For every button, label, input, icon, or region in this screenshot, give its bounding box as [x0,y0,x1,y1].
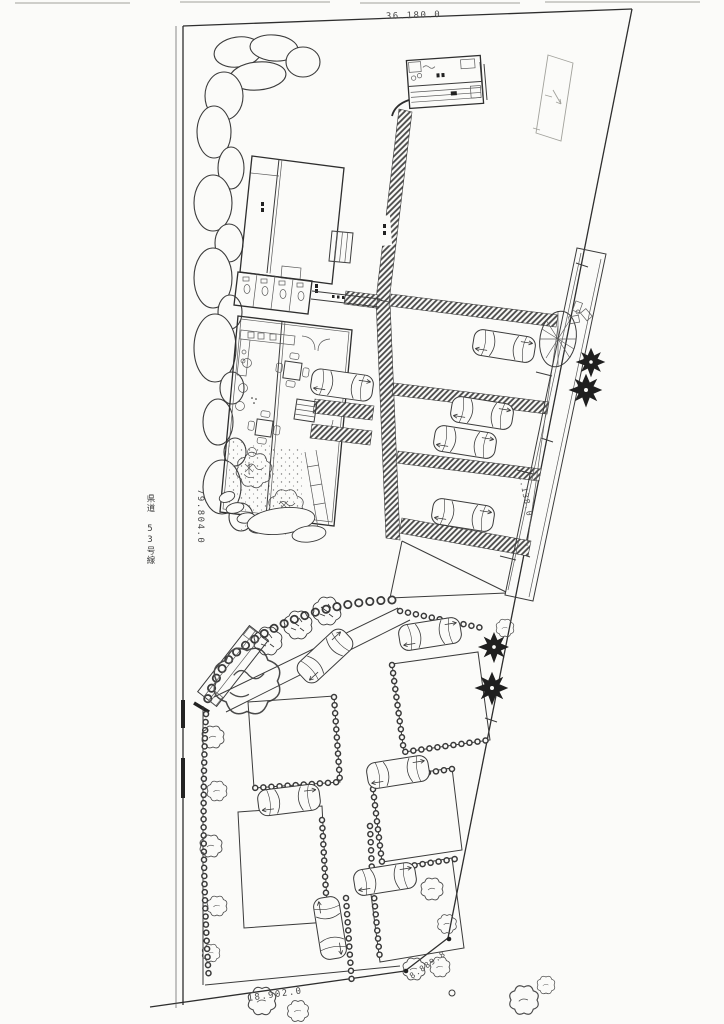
corner-shrub [537,976,555,994]
conifer-tree [478,632,509,663]
corner-marker [447,937,452,942]
survey-point [449,990,455,996]
boundary-shrub [438,915,457,934]
annex-building [406,55,483,108]
walkway-label-box [379,215,392,246]
dining-table [246,409,282,446]
road-label: 県道 53号線 [145,494,155,565]
parking-bottom-line [390,541,506,598]
parking-cars-lower [257,616,463,960]
walkway-north [376,109,412,302]
conifer-tree [475,672,509,706]
car [432,424,497,459]
entrance-doors [302,336,330,351]
stairs [329,231,353,263]
bottom-shrub [288,1001,309,1022]
dim-left-label: 79.804.0 [195,489,205,544]
lower-yard [198,593,555,1021]
car [312,895,347,960]
kitchen-counter [237,330,295,376]
boundary-shrub [421,878,443,900]
faint-plot-outline [533,55,573,141]
toilet-block [234,272,318,314]
car [365,754,430,789]
terrace [294,399,374,445]
conifer-tree [576,348,606,378]
car [471,328,536,363]
site-plan-page: 36.180.0 79.804.0 県道 53号線 81.138.0 18.90… [0,0,724,1024]
corner-shrub [510,986,539,1015]
car [352,861,417,896]
dim-top-label: 36.180.0 [386,10,442,22]
scan-artifacts [15,2,700,3]
car [309,368,374,402]
main-building-upper [240,156,353,284]
conifer-tree [569,374,603,408]
car [293,625,356,686]
walkway-spine [376,300,400,540]
